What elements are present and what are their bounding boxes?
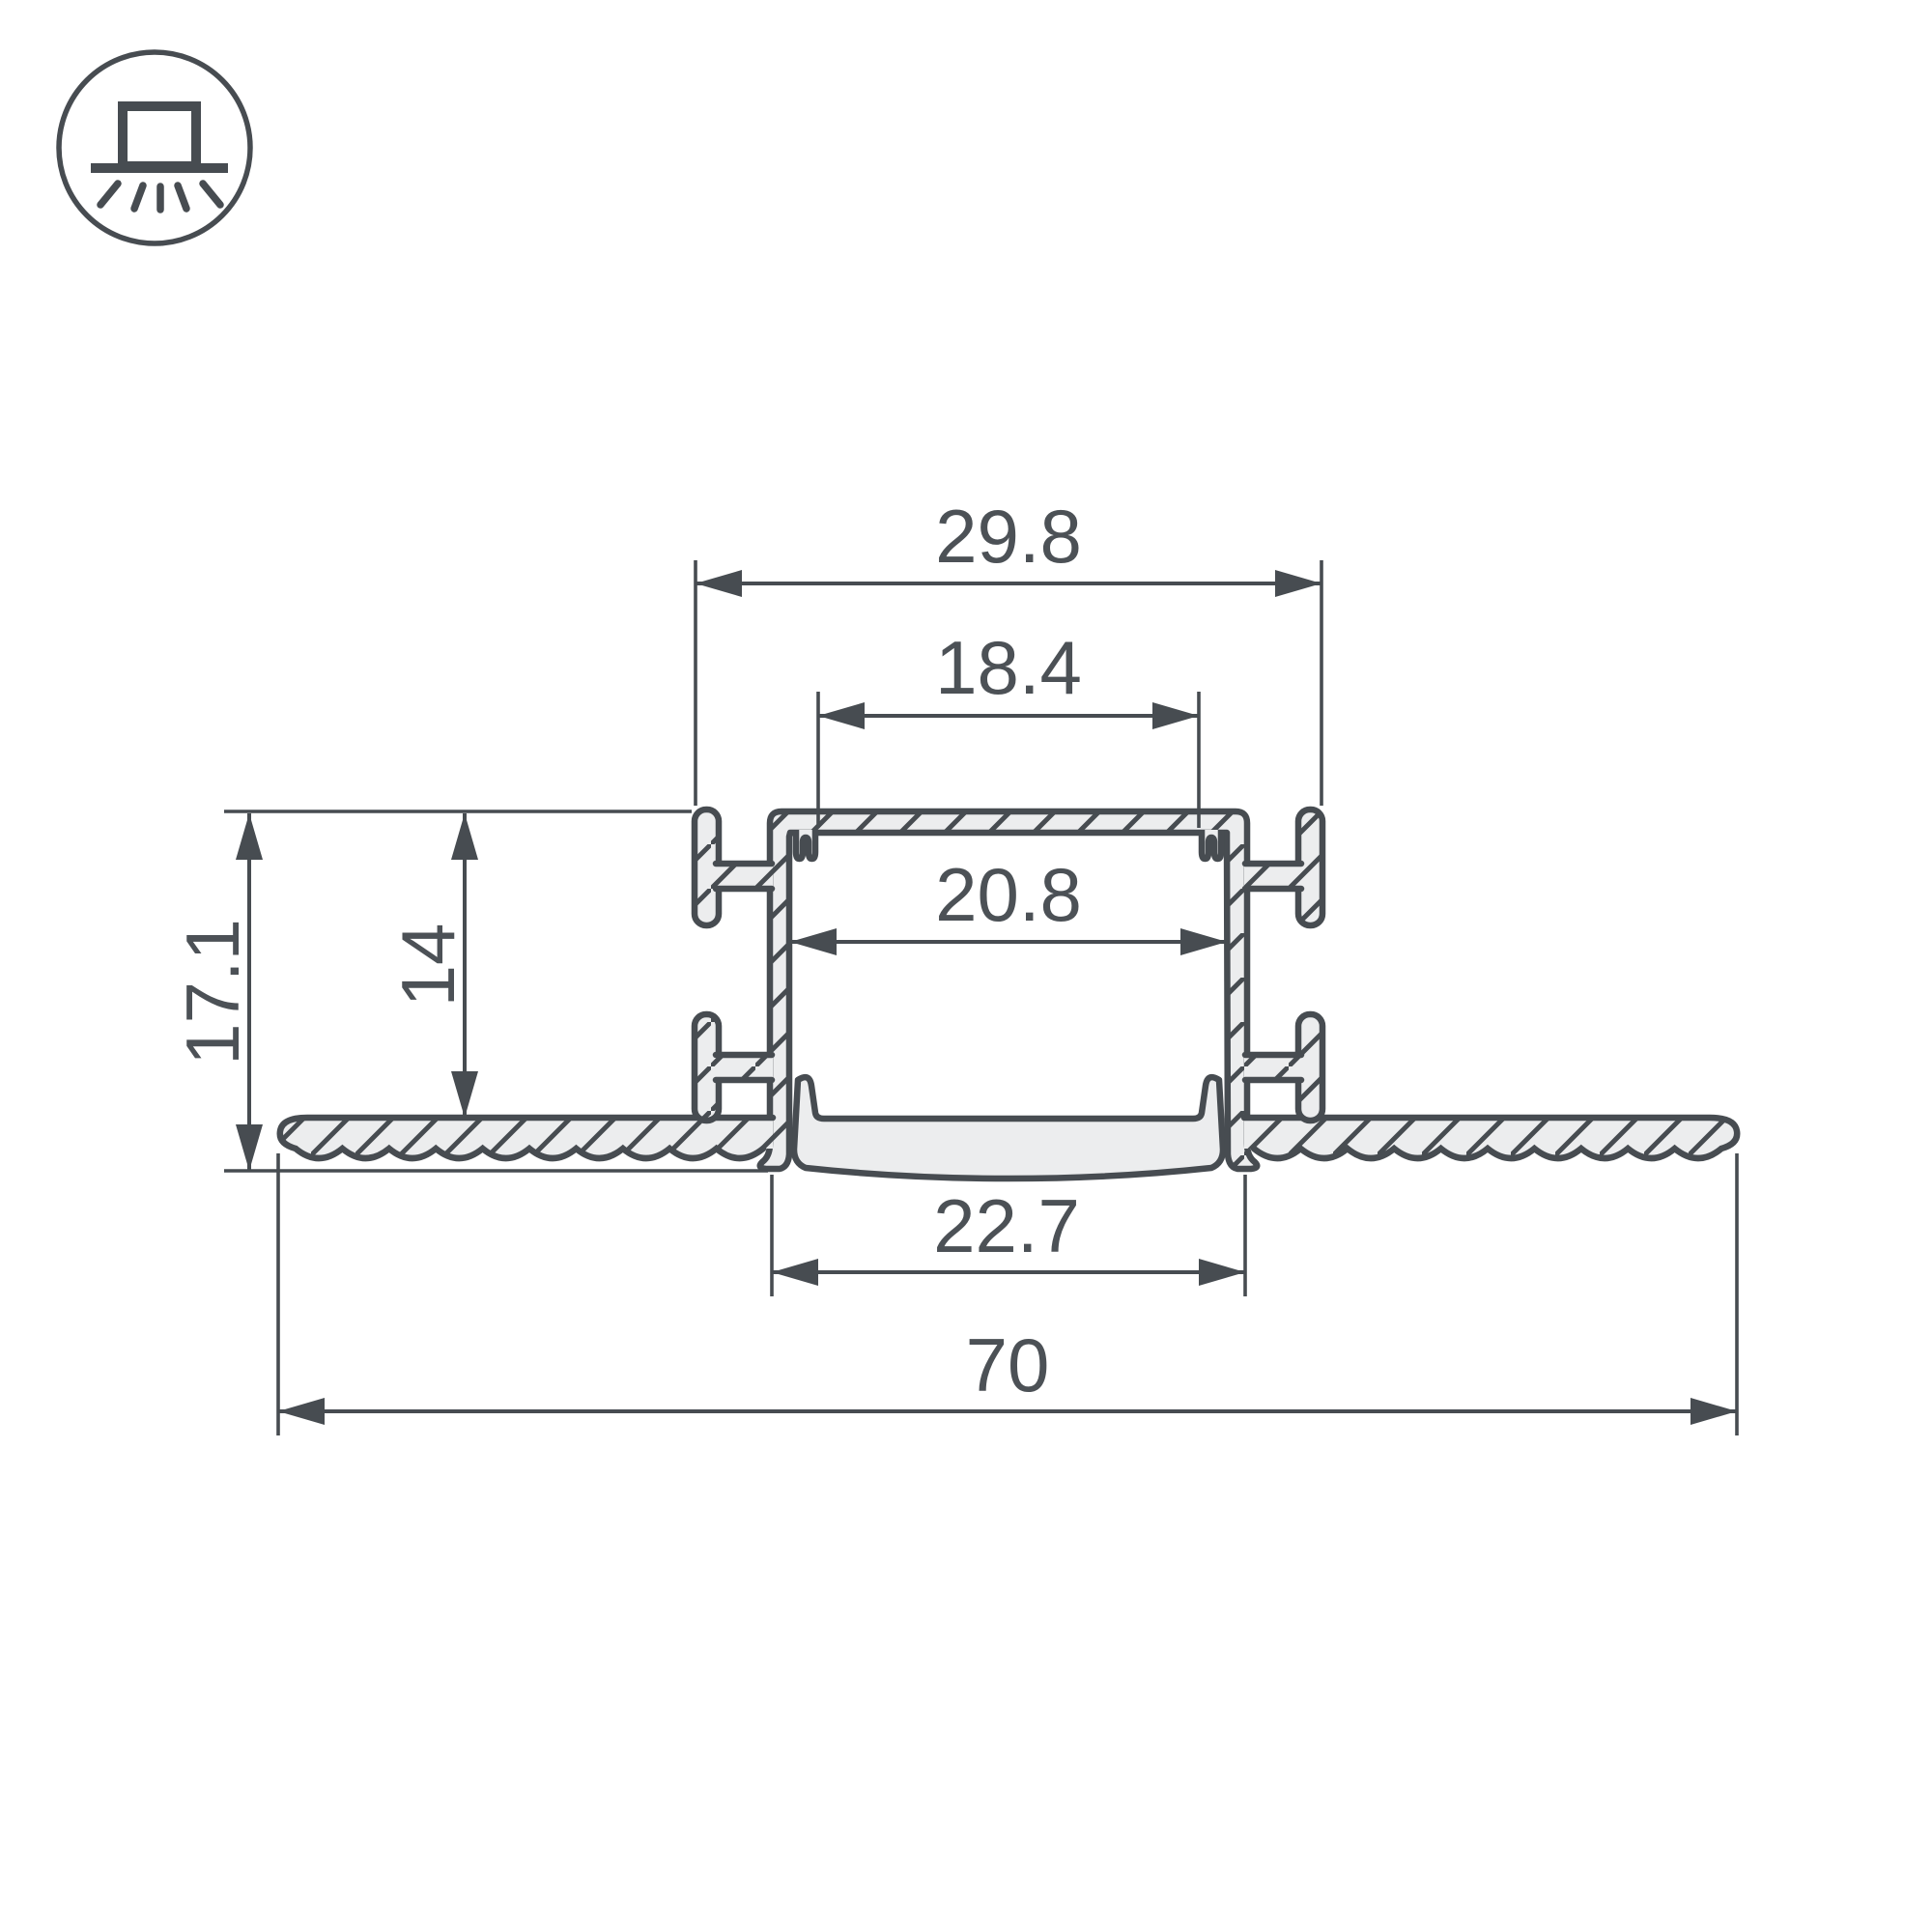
dim-label-bottom-lip-width: 22.7: [933, 1183, 1080, 1268]
background: [0, 0, 1932, 1932]
dim-label-recess-depth: 14: [385, 923, 470, 1008]
drawing-page: 29.8 18.4 20.8 14 17.1 22: [0, 0, 1932, 1932]
dim-label-led-slot-width: 18.4: [935, 625, 1082, 710]
technical-drawing-canvas: 29.8 18.4 20.8 14 17.1 22: [0, 0, 1932, 1932]
dim-label-outer-tab-width: 29.8: [935, 494, 1082, 579]
dim-label-inner-channel-width: 20.8: [935, 852, 1082, 937]
led-strip-hook-left: [796, 830, 815, 859]
dim-label-overall-height: 17.1: [170, 919, 255, 1065]
dim-label-overall-flange-width: 70: [966, 1322, 1050, 1407]
led-strip-hook-right: [1202, 830, 1221, 859]
